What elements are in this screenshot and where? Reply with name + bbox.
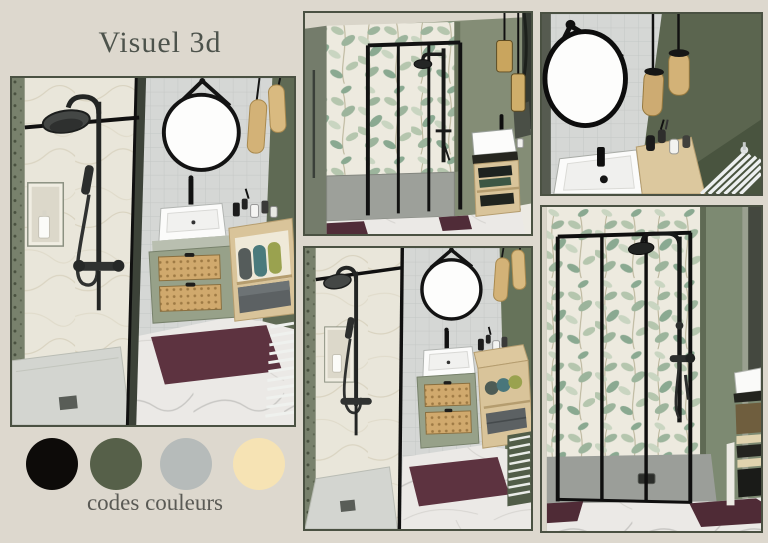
wall-corner: [700, 207, 706, 457]
bath-mat-2: [439, 215, 472, 231]
design-board: { "title": "Visuel 3d", "palette": { "la…: [0, 0, 768, 543]
vanity-unit: [417, 373, 479, 448]
shower-tray: [327, 172, 455, 221]
wall-edge: [542, 207, 547, 531]
panel-room-view: [303, 246, 533, 531]
vanity-shelves: [474, 160, 520, 216]
towel-shelf: [229, 218, 294, 321]
color-swatch-green: [90, 438, 142, 490]
leaf-wallpaper: [547, 207, 700, 457]
color-swatch-black: [26, 438, 78, 490]
radiator: [507, 431, 531, 506]
bath-mat-2: [689, 498, 761, 527]
vanity-unit: [149, 246, 235, 323]
color-swatch-gray: [160, 438, 212, 490]
shower-niche: [28, 183, 63, 246]
panel-shower-closeup: [540, 205, 763, 533]
color-swatch-cream: [233, 438, 285, 490]
panel-vanity-closeup: [540, 12, 763, 196]
page-title: Visuel 3d: [50, 26, 270, 60]
side-wall: [305, 26, 327, 234]
panel-front-view: [303, 11, 533, 236]
palette-label: codes couleurs: [40, 490, 270, 516]
bath-mat: [327, 221, 368, 234]
dark-sliver: [748, 207, 761, 370]
panel-main-view: [10, 76, 296, 427]
shower-tray: [12, 347, 130, 425]
